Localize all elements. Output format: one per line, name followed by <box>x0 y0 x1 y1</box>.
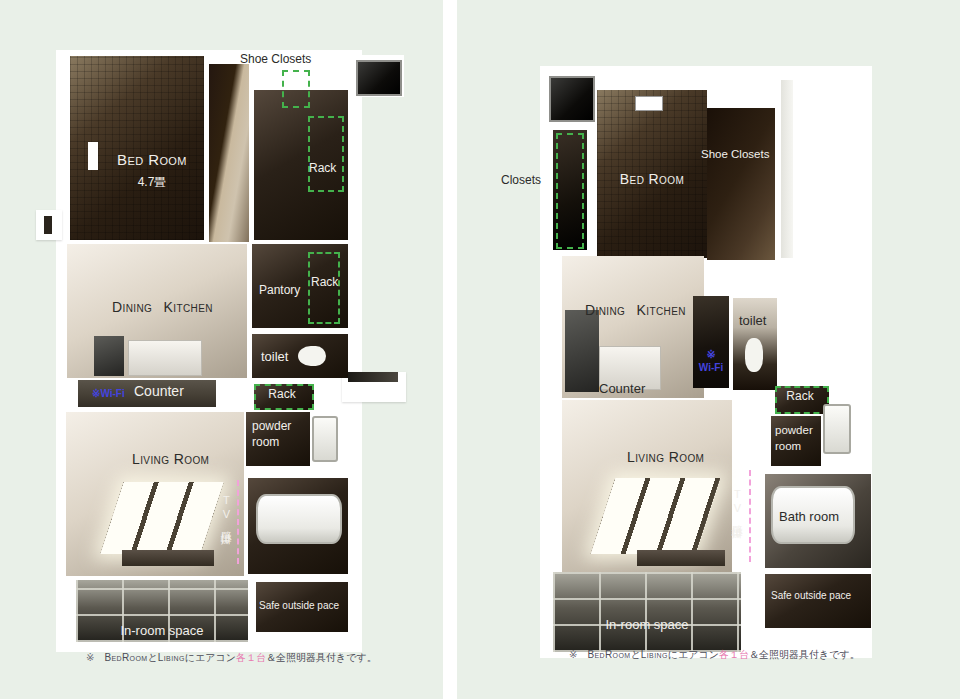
footnote-caption: ※BedRoomとLibingにエアコン各１台＆全照明器具付きです。 <box>86 651 377 665</box>
shoe-closets-label: Shoe Closets <box>701 148 769 161</box>
wifi-label: ※Wi-Fi <box>92 388 125 399</box>
bathtub <box>256 494 342 544</box>
bedroom-label: Bed Room <box>599 172 705 188</box>
powder-room-label-line2: room <box>252 436 279 449</box>
caption-seg-rest: ＆全照明器具付きです。 <box>749 649 860 660</box>
powder-room-label-line2: room <box>775 440 801 453</box>
shoe-closet-corridor <box>707 108 775 260</box>
caption-seg-aircon: にエアコン <box>668 649 719 660</box>
counter-label: Counter <box>599 382 645 397</box>
washstand <box>312 416 338 462</box>
bedroom-window <box>635 96 663 111</box>
shoe-closet-dash-outline <box>282 70 310 108</box>
wifi-niche <box>693 296 729 388</box>
caption-seg-bedroom: BedRoom <box>104 652 147 663</box>
in-room-space-label: In-room space <box>577 618 717 633</box>
washstand <box>823 404 851 454</box>
rack-lower-label: Rack <box>254 388 310 401</box>
footnote-caption: ※BedRoomとLibingにエアコン各１台＆全照明器具付きです。 <box>569 648 860 662</box>
caption-seg-aircon: にエアコン <box>185 652 236 663</box>
kitchen-counter <box>128 340 202 376</box>
window-box <box>356 60 402 96</box>
bedroom-label: Bed Room <box>90 152 214 169</box>
entry-corridor <box>209 64 249 242</box>
bath-room-label: Bath room <box>779 510 839 525</box>
caption-seg-count: 各１台 <box>236 652 266 663</box>
floor-plan-right: Closets Bed Room Shoe Closets Dining Kit… <box>457 0 960 699</box>
upper-right-wall-shade <box>781 80 793 258</box>
powder-room-label-line1: powder <box>252 420 291 433</box>
caption-seg-to: と <box>148 652 158 663</box>
rack-upper-label: Rack <box>309 162 336 175</box>
caption-seg-rest: ＆全照明器具付きです。 <box>266 652 377 663</box>
caption-mark: ※ <box>569 649 577 660</box>
wifi-mark: ※ <box>695 348 727 360</box>
safe-outside-label: Safe outside pace <box>259 600 339 611</box>
bed-base <box>122 550 214 566</box>
caption-seg-to: と <box>631 649 641 660</box>
toilet-label: toilet <box>261 350 288 365</box>
in-room-space-area <box>553 572 741 652</box>
powder-room-label-line1: powder <box>775 424 813 437</box>
counter-label: Counter <box>134 384 184 400</box>
shoe-closets-label: Shoe Closets <box>240 53 311 66</box>
tv-wall-dash-line <box>237 480 239 564</box>
rack-label: Rack <box>775 390 825 403</box>
wifi-label: Wi-Fi <box>691 362 731 373</box>
rack-dash-outline <box>308 116 344 192</box>
caption-seg-count: 各１台 <box>719 649 749 660</box>
caption-mark: ※ <box>86 652 94 663</box>
tv-wall-dash-line <box>749 470 751 562</box>
floor-plan-comparison-image: { "colors": { "page_background": "#fffff… <box>0 0 960 699</box>
right-step-shade <box>348 372 398 382</box>
tv-wall-label: TV壁掛け <box>731 488 743 552</box>
toilet-label: toilet <box>739 314 766 329</box>
in-room-space-label: In-room space <box>92 624 232 639</box>
closets-dash-outline <box>556 133 584 249</box>
fridge <box>94 336 124 376</box>
left-protrusion-slit <box>44 216 52 234</box>
pantry-label: Pantory <box>259 284 300 297</box>
bed-base <box>637 550 725 566</box>
caption-seg-libing: Libing <box>158 652 185 663</box>
toilet-fixture <box>745 338 763 372</box>
kitchen-run <box>565 310 599 392</box>
caption-seg-bedroom: BedRoom <box>587 649 630 660</box>
dining-kitchen-label: Dining Kitchen <box>585 303 686 319</box>
window-box <box>549 76 595 122</box>
dining-kitchen-label: Dining Kitchen <box>112 300 213 316</box>
floor-plan-left: Shoe Closets Bed Room 4.7畳 Rack Dining K… <box>0 0 443 699</box>
pantry-rack-label: Rack <box>311 276 338 289</box>
toilet-fixture <box>298 346 326 366</box>
caption-seg-libing: Libing <box>641 649 668 660</box>
tv-wall-label: TV壁掛け <box>220 494 232 556</box>
bedroom-size-label: 4.7畳 <box>90 176 214 189</box>
living-room-label: Living Room <box>627 450 704 466</box>
living-room-label: Living Room <box>132 452 209 468</box>
closets-label: Closets <box>501 174 541 187</box>
safe-outside-label: Safe outside pace <box>771 590 851 601</box>
